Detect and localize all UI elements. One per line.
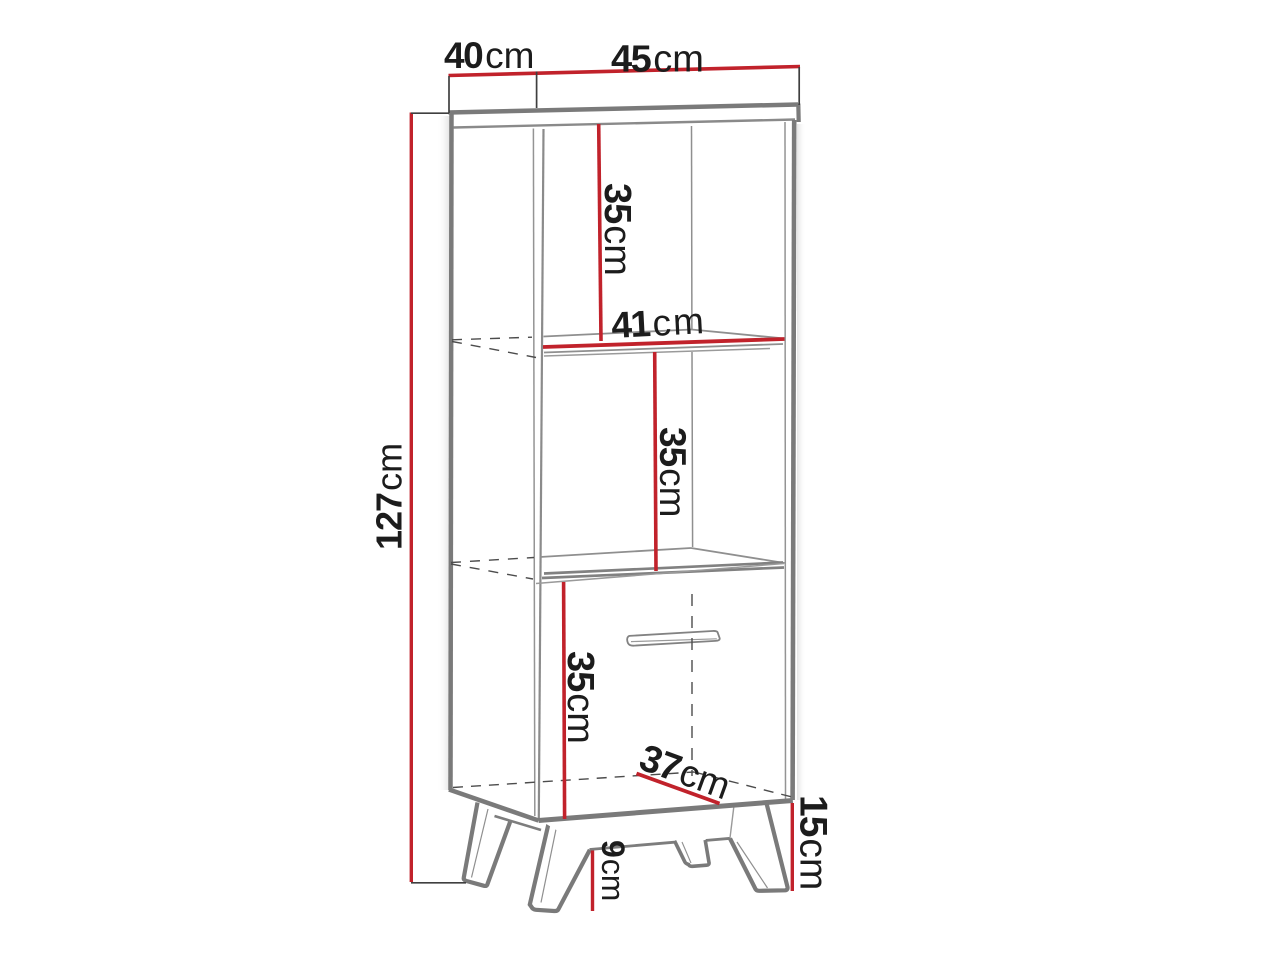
svg-text:45cm: 45cm bbox=[611, 39, 704, 81]
svg-text:40cm: 40cm bbox=[444, 35, 534, 76]
svg-text:9cm: 9cm bbox=[595, 840, 631, 901]
svg-text:15cm: 15cm bbox=[792, 795, 835, 890]
svg-text:35cm: 35cm bbox=[596, 183, 638, 276]
svg-text:127cm: 127cm bbox=[369, 443, 410, 550]
svg-text:35cm: 35cm bbox=[652, 427, 693, 517]
svg-text:41cm: 41cm bbox=[610, 300, 707, 346]
svg-text:35cm: 35cm bbox=[559, 651, 601, 744]
